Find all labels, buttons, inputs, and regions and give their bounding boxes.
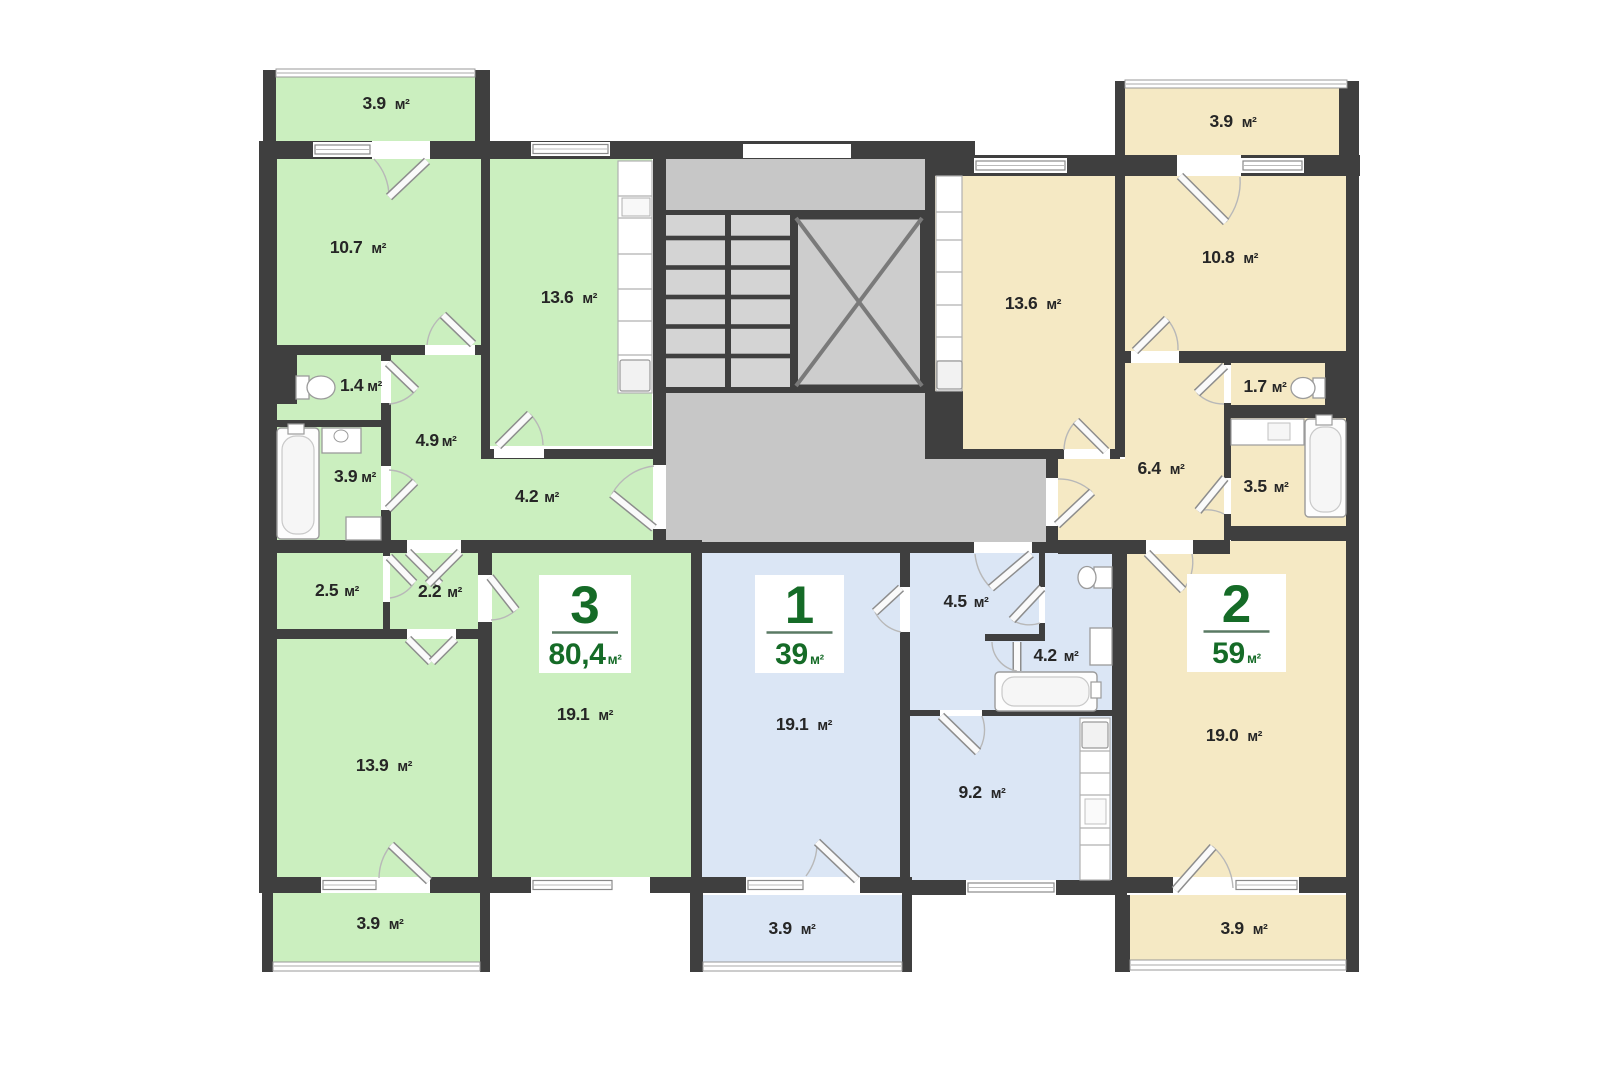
- svg-text:1: 1: [785, 576, 814, 635]
- svg-text:3: 3: [570, 576, 599, 635]
- svg-text:2: 2: [1222, 575, 1251, 634]
